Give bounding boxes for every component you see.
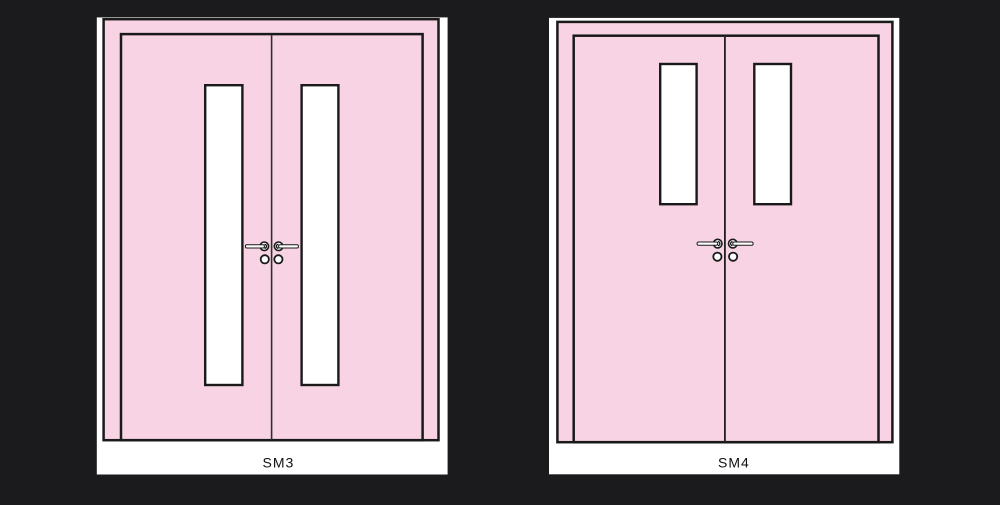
svg-text:SM4: SM4: [718, 455, 750, 471]
svg-text:SM3: SM3: [263, 455, 295, 471]
